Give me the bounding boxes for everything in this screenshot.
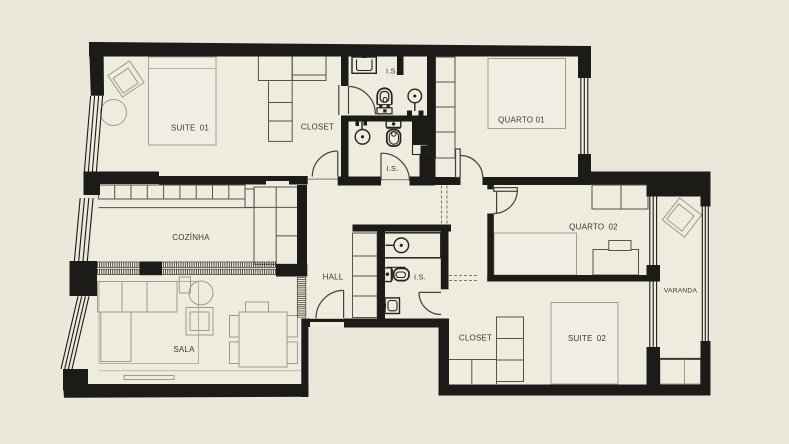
svg-text:CLOSET: CLOSET [459, 334, 492, 343]
svg-text:SUITE 02: SUITE 02 [568, 334, 606, 343]
svg-text:HALL: HALL [323, 273, 344, 282]
svg-text:SUITE 01: SUITE 01 [171, 124, 209, 133]
svg-text:COZÍNHA: COZÍNHA [172, 233, 210, 242]
svg-text:QUARTO 01: QUARTO 01 [498, 116, 545, 125]
svg-text:SALA: SALA [173, 345, 195, 354]
svg-text:QUARTO 02: QUARTO 02 [569, 223, 618, 232]
svg-text:I.S.: I.S. [386, 67, 398, 76]
svg-text:VARANDA: VARANDA [664, 288, 698, 295]
svg-text:CLOSET: CLOSET [301, 123, 334, 132]
svg-text:I.S.: I.S. [386, 164, 398, 173]
svg-text:I.S.: I.S. [414, 273, 426, 282]
